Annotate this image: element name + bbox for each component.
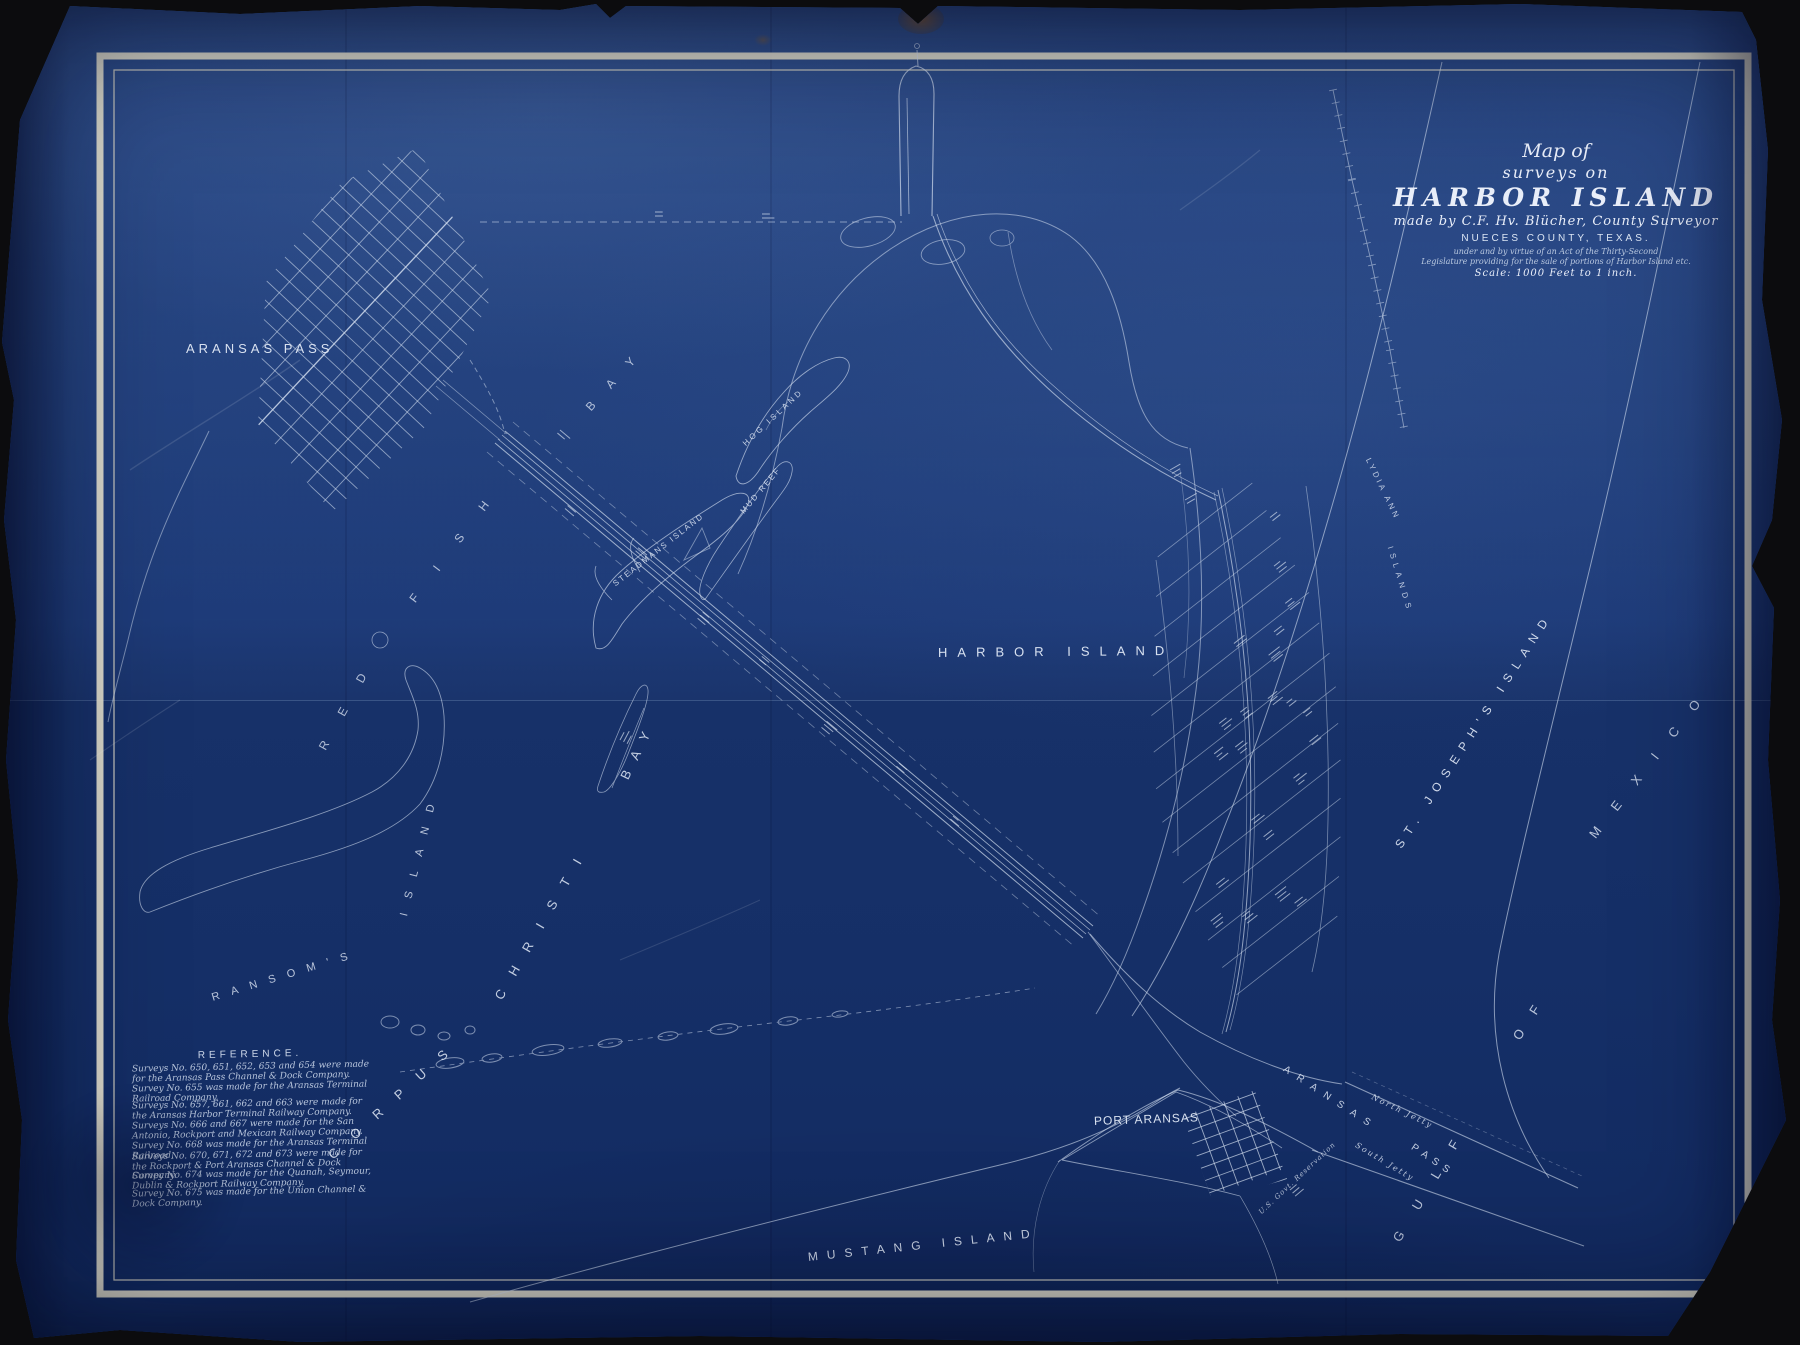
blueprint-sheet: ARANSAS PASSREDFISHBAYHARBOR ISLANDCORPU… (0, 0, 1800, 1345)
vignette (0, 0, 1800, 1345)
blueprint-photo: ARANSAS PASSREDFISHBAYHARBOR ISLANDCORPU… (0, 0, 1800, 1345)
